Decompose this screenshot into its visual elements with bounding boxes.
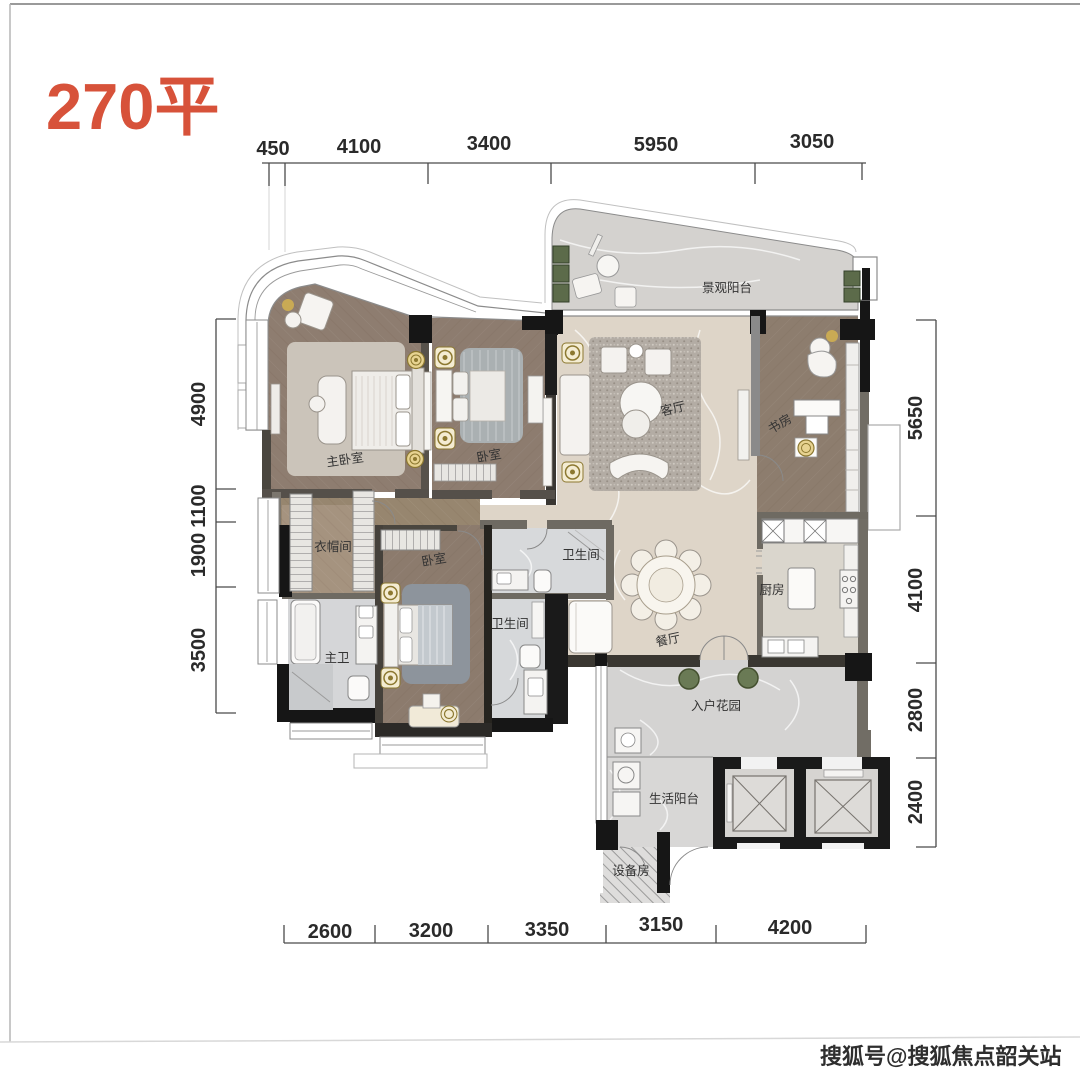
svg-text:5950: 5950 — [634, 134, 679, 156]
svg-text:3150: 3150 — [639, 914, 684, 936]
svg-text:3050: 3050 — [790, 131, 835, 153]
svg-text:卫生间: 卫生间 — [491, 617, 529, 631]
svg-text:主卫: 主卫 — [324, 651, 349, 665]
svg-text:270平: 270平 — [46, 70, 219, 143]
svg-text:生活阳台: 生活阳台 — [649, 791, 699, 806]
svg-text:3400: 3400 — [467, 133, 512, 155]
svg-text:4200: 4200 — [768, 917, 813, 939]
svg-text:1900: 1900 — [188, 533, 210, 578]
svg-text:衣帽间: 衣帽间 — [314, 539, 352, 554]
svg-text:设备房: 设备房 — [612, 863, 650, 878]
svg-text:搜狐号@搜狐焦点韶关站: 搜狐号@搜狐焦点韶关站 — [820, 1044, 1061, 1069]
svg-text:1100: 1100 — [188, 484, 210, 527]
svg-text:2400: 2400 — [905, 780, 927, 825]
svg-text:入户花园: 入户花园 — [691, 698, 741, 713]
svg-text:4100: 4100 — [337, 136, 382, 158]
svg-text:2800: 2800 — [905, 688, 927, 733]
svg-text:2600: 2600 — [308, 921, 353, 943]
svg-text:卫生间: 卫生间 — [562, 548, 600, 562]
svg-text:3200: 3200 — [409, 920, 454, 942]
svg-text:厨房: 厨房 — [759, 582, 784, 597]
svg-text:景观阳台: 景观阳台 — [702, 280, 752, 295]
svg-text:3350: 3350 — [525, 919, 570, 941]
svg-text:5650: 5650 — [905, 396, 927, 441]
svg-text:4900: 4900 — [188, 382, 210, 427]
svg-text:4100: 4100 — [905, 568, 927, 613]
svg-text:3500: 3500 — [188, 628, 210, 673]
svg-text:450: 450 — [256, 138, 289, 160]
